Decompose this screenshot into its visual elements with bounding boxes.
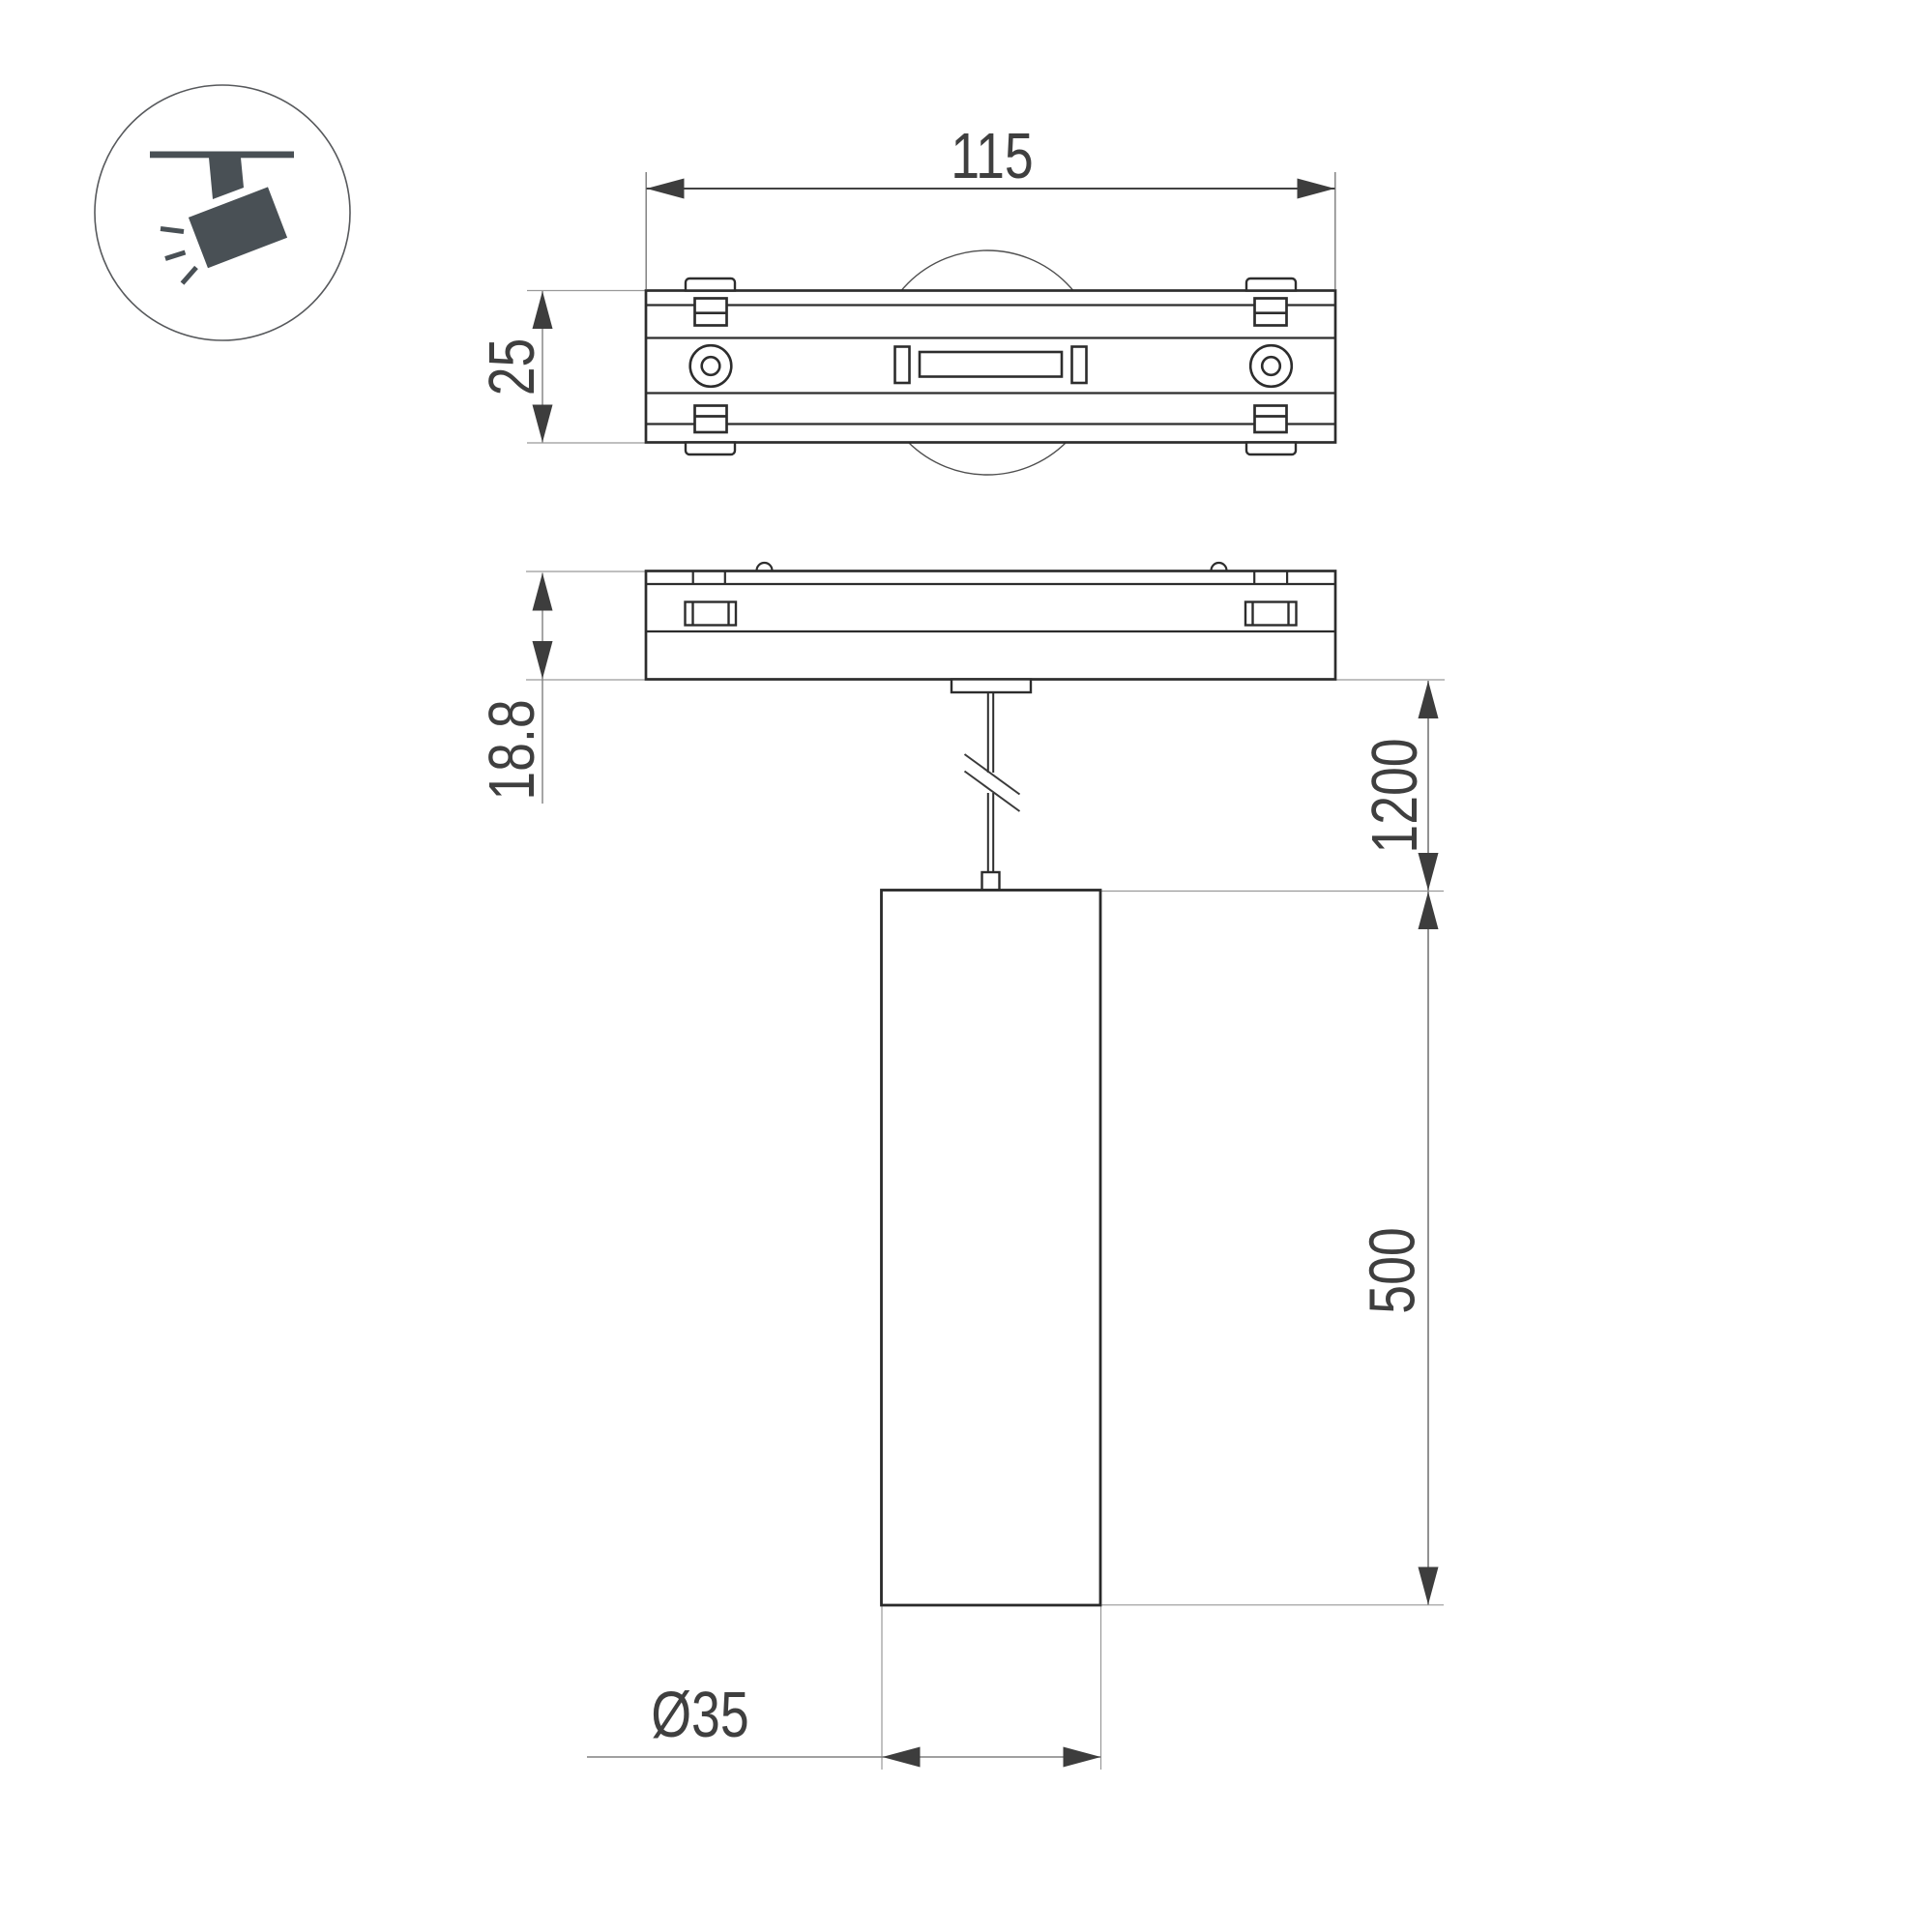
svg-text:25: 25 [475,338,547,396]
svg-text:1200: 1200 [1358,738,1430,853]
svg-text:Ø35: Ø35 [651,1678,748,1750]
svg-text:115: 115 [951,119,1033,191]
svg-text:18.8: 18.8 [475,699,547,800]
svg-text:500: 500 [1356,1227,1428,1313]
